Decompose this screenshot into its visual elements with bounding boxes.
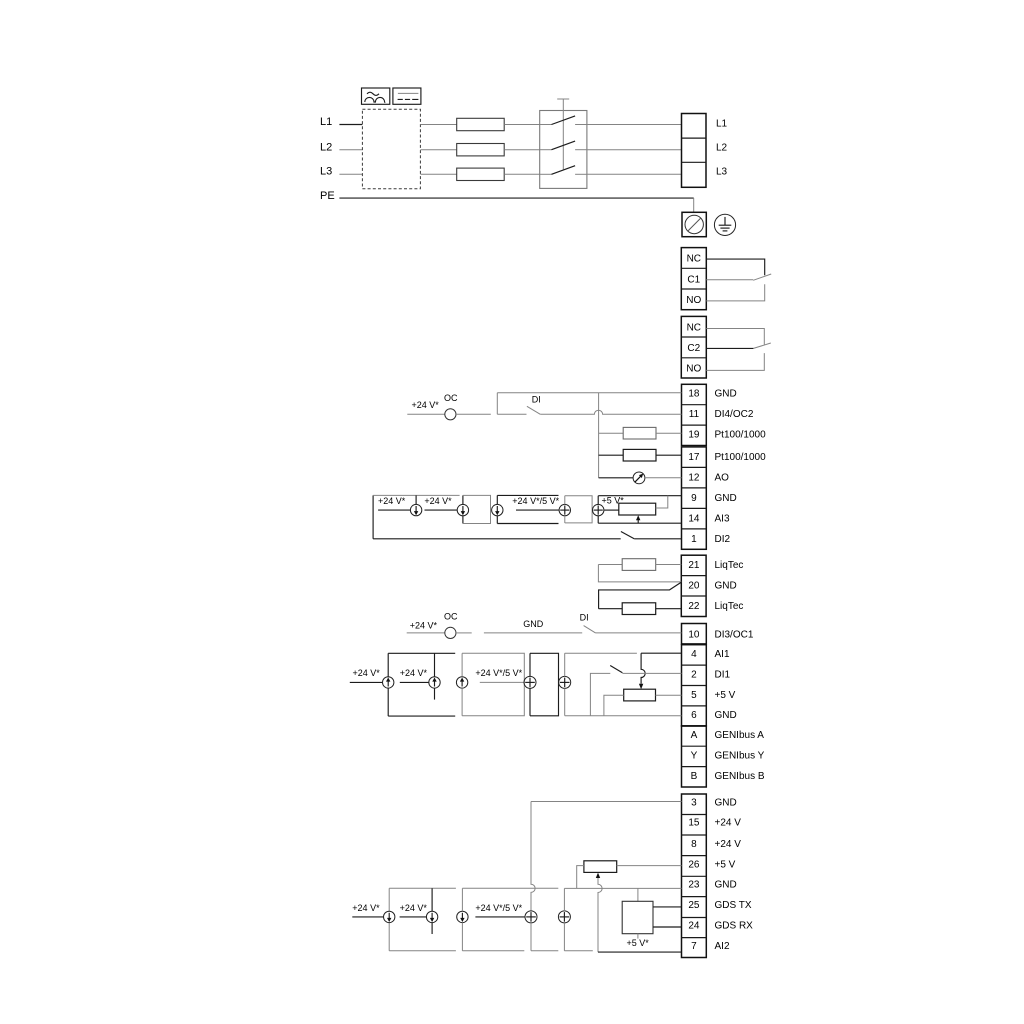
svg-text:GND: GND [715,389,737,400]
svg-text:+24 V*/5 V*: +24 V*/5 V* [475,903,522,913]
svg-text:AI1: AI1 [715,649,730,660]
svg-text:+24 V: +24 V [715,818,742,829]
svg-text:OC: OC [444,393,458,403]
svg-text:GND: GND [715,580,737,591]
svg-text:+24 V*: +24 V* [400,668,428,678]
svg-text:2: 2 [691,669,697,680]
svg-text:B: B [691,771,698,782]
svg-text:+24 V*: +24 V* [353,668,381,678]
svg-text:NO: NO [686,364,701,375]
svg-text:OC: OC [444,612,458,622]
svg-text:NC: NC [687,254,701,265]
svg-text:+24 V*: +24 V* [378,496,406,506]
svg-text:GDS TX: GDS TX [715,900,752,911]
svg-text:10: 10 [688,629,700,640]
svg-text:3: 3 [691,797,697,808]
svg-text:1: 1 [691,534,697,545]
svg-text:7: 7 [691,941,697,952]
svg-text:4: 4 [691,649,697,660]
svg-text:LiqTec: LiqTec [715,601,744,612]
svg-text:GND: GND [523,619,544,629]
svg-text:A: A [691,730,698,741]
svg-text:+24 V*: +24 V* [400,903,428,913]
svg-text:GENIbus B: GENIbus B [715,771,765,782]
svg-text:26: 26 [688,859,700,870]
svg-text:DI4/OC2: DI4/OC2 [715,409,754,420]
svg-text:GENIbus A: GENIbus A [715,730,765,741]
svg-text:+5 V: +5 V [715,859,736,870]
svg-text:GND: GND [715,797,737,808]
svg-text:DI: DI [580,613,589,623]
svg-text:C1: C1 [687,274,700,285]
svg-text:24: 24 [688,921,700,932]
svg-text:L3: L3 [716,167,728,178]
svg-text:14: 14 [688,513,700,524]
svg-text:9: 9 [691,493,697,504]
svg-text:LiqTec: LiqTec [715,560,744,571]
svg-text:DI2: DI2 [715,534,731,545]
svg-text:+24 V*/5 V*: +24 V*/5 V* [512,496,559,506]
svg-text:20: 20 [688,580,700,591]
svg-text:L1: L1 [320,116,332,128]
svg-text:NO: NO [686,295,701,306]
svg-text:L2: L2 [320,142,332,154]
svg-text:23: 23 [688,880,700,891]
svg-text:+24 V: +24 V [715,839,742,850]
svg-text:Y: Y [691,751,698,762]
svg-text:GENIbus Y: GENIbus Y [715,751,765,762]
svg-text:12: 12 [688,472,700,483]
svg-text:DI1: DI1 [715,669,731,680]
svg-text:21: 21 [688,560,700,571]
svg-text:+24 V*: +24 V* [412,400,440,410]
svg-text:AI2: AI2 [715,941,730,952]
svg-text:22: 22 [688,601,700,612]
svg-text:DI: DI [532,394,541,404]
svg-text:+24 V*: +24 V* [410,621,438,631]
svg-text:Pt100/1000: Pt100/1000 [715,429,767,440]
svg-text:18: 18 [688,389,700,400]
svg-text:AO: AO [715,472,730,483]
svg-text:NC: NC [687,322,701,333]
svg-text:11: 11 [689,409,700,420]
svg-text:DI3/OC1: DI3/OC1 [715,629,754,640]
svg-text:AI3: AI3 [715,513,730,524]
svg-text:GND: GND [715,880,737,891]
svg-text:15: 15 [688,818,700,829]
svg-text:L3: L3 [320,165,332,177]
svg-text:GND: GND [715,493,737,504]
svg-text:+24 V*: +24 V* [424,496,452,506]
svg-text:PE: PE [320,190,335,202]
svg-text:8: 8 [691,839,697,850]
svg-text:+5 V*: +5 V* [627,938,650,948]
svg-text:+5 V*: +5 V* [602,496,625,506]
svg-text:25: 25 [688,900,700,911]
svg-text:L1: L1 [716,119,728,130]
svg-text:6: 6 [691,710,697,721]
svg-text:GDS RX: GDS RX [715,921,754,932]
svg-text:19: 19 [688,429,700,440]
svg-text:C2: C2 [687,343,700,354]
svg-text:Pt100/1000: Pt100/1000 [715,452,767,463]
svg-text:GND: GND [715,710,737,721]
svg-text:+24 V*: +24 V* [352,903,380,913]
svg-text:5: 5 [691,690,697,701]
svg-text:+5 V: +5 V [715,690,736,701]
svg-text:+24 V*/5 V*: +24 V*/5 V* [475,668,522,678]
svg-text:17: 17 [688,452,700,463]
svg-text:L2: L2 [716,143,728,154]
